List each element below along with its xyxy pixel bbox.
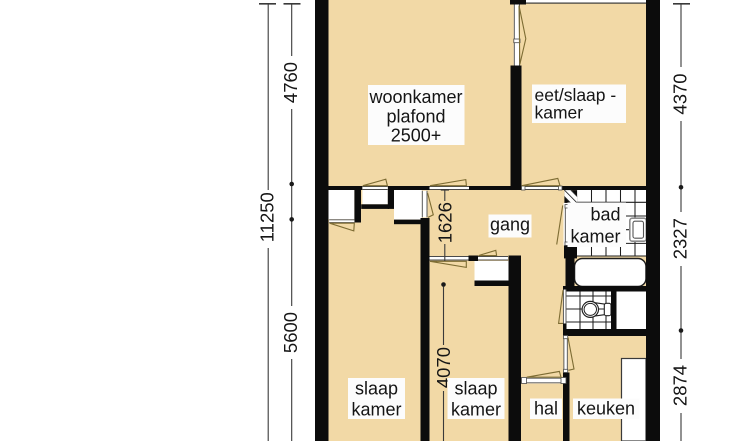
svg-text:kamer: kamer: [535, 103, 584, 123]
svg-text:1626: 1626: [434, 202, 455, 243]
svg-text:2874: 2874: [670, 365, 691, 406]
svg-text:11250: 11250: [257, 192, 278, 242]
svg-text:hal: hal: [534, 399, 558, 419]
svg-text:keuken: keuken: [577, 399, 635, 419]
svg-text:slaap: slaap: [454, 379, 497, 399]
svg-text:slaap: slaap: [355, 379, 398, 399]
svg-text:woonkamer: woonkamer: [368, 87, 462, 107]
svg-text:2500+: 2500+: [391, 126, 442, 146]
svg-text:plafond: plafond: [386, 107, 445, 127]
svg-text:5600: 5600: [280, 312, 301, 353]
svg-text:kamer: kamer: [451, 400, 501, 420]
svg-text:4370: 4370: [670, 73, 691, 114]
svg-text:kamer: kamer: [570, 227, 620, 247]
svg-text:4760: 4760: [280, 62, 301, 103]
svg-text:gang: gang: [490, 215, 530, 235]
svg-text:bad: bad: [590, 205, 620, 225]
svg-text:kamer: kamer: [351, 400, 401, 420]
svg-text:2327: 2327: [670, 218, 691, 259]
